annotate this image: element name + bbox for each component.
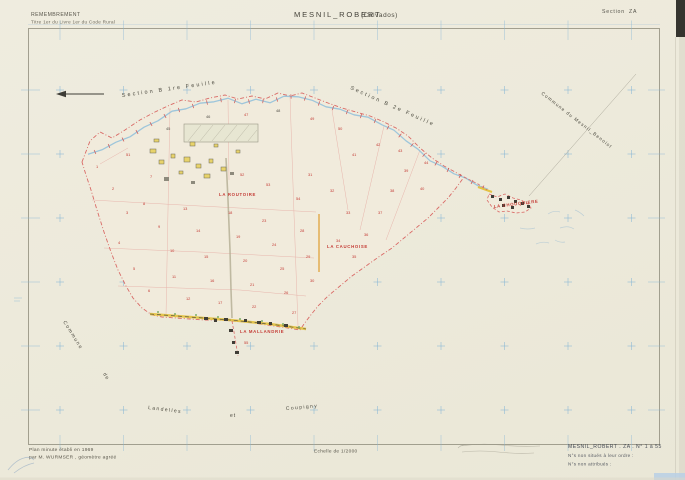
parcel-number: 25 — [280, 266, 284, 271]
parcel-number: 27 — [292, 310, 296, 315]
parcel-number: 39 — [404, 168, 408, 173]
parcel-number: 8 — [143, 201, 145, 206]
area-label: Commune — [61, 320, 84, 351]
section-label: Section — [602, 9, 625, 15]
reference-note2: N°s non attribués : — [568, 462, 612, 467]
parcel-number: 36 — [364, 232, 368, 237]
parcel-number: 2 — [112, 186, 114, 191]
parcel-number: 13 — [183, 206, 187, 211]
parcel-number: 46 — [206, 114, 210, 119]
south-spur-boundary — [232, 321, 238, 356]
parcel-number: 33 — [346, 210, 350, 215]
parcel-number: 18 — [228, 210, 232, 215]
department-name: (Calvados) — [361, 12, 398, 19]
parcel-number: 43 — [398, 148, 402, 153]
code-rural-reference: Titre 1er du Livre 1er du Code Rural — [31, 20, 115, 25]
parcel-number: 26 — [284, 290, 288, 295]
parcel-number: 21 — [250, 282, 254, 287]
parcel-number: 52 — [240, 172, 244, 177]
scanned-cadastral-sheet: { "document": { "header": { "law_line1":… — [0, 0, 685, 480]
hatched-plot — [184, 124, 258, 142]
lieu-dit-label: LA ROUTOIRE — [219, 192, 256, 197]
area-label: Section B 1re Feuille — [121, 80, 217, 99]
section-value: ZA — [629, 9, 637, 15]
parcel-number: 22 — [252, 304, 256, 309]
parcel-number: 47 — [244, 112, 248, 117]
area-label: Landelles — [148, 405, 182, 415]
parcel-number: 53 — [266, 182, 270, 187]
parcel-number: 38 — [390, 188, 394, 193]
edge-shadow-top-right — [676, 0, 685, 37]
area-label: et — [230, 413, 236, 419]
scale-label: Echelle de 1/2000 — [314, 449, 358, 455]
parcel-number: 29 — [306, 254, 310, 259]
minute-line2: par M. WURMSER , géomètre agréé — [29, 455, 116, 461]
reference-note1: N°s non situés à leur ordre : — [568, 453, 634, 458]
area-label: Commune du Mesnil_Benoist — [540, 91, 613, 150]
parcel-number: 37 — [378, 210, 382, 215]
parcel-number: 15 — [204, 254, 208, 259]
header: REMEMBREMENT Titre 1er du Livre 1er du C… — [31, 9, 637, 25]
parcel-number: 31 — [308, 172, 312, 177]
parcel-number: 6 — [148, 288, 150, 293]
parcel-number: 3 — [126, 210, 128, 215]
lieu-dit-label: LA CAUCHOISE — [327, 244, 368, 249]
left-margin-mark — [14, 298, 22, 301]
parcel-number: 11 — [172, 274, 176, 279]
minute-line1: Plan minute établi en 1969 — [29, 447, 94, 453]
blue-field-notes — [520, 210, 584, 244]
remembrement-label: REMEMBREMENT — [31, 12, 81, 18]
edge-right — [679, 37, 685, 480]
pencil-annotation — [458, 444, 540, 453]
parcel-number: 17 — [218, 300, 222, 305]
parcel-number: 19 — [236, 234, 240, 239]
parcel-number: 9 — [158, 224, 160, 229]
section-za-parcel-block — [82, 93, 492, 356]
parcel-number: 12 — [186, 296, 190, 301]
parcel-number: 35 — [352, 254, 356, 259]
parcel-number: 16 — [210, 278, 214, 283]
footer: Plan minute établi en 1969 par M. WURMSE… — [29, 444, 662, 467]
parcel-number: 28 — [300, 228, 304, 233]
parcel-number: 48 — [276, 108, 280, 113]
parcel-number: 5 — [133, 266, 135, 271]
reference-title: MESNIL_ROBERT . ZA . N° 1 à 55 — [568, 444, 662, 450]
area-label: de — [101, 372, 110, 382]
parcel-number: 42 — [376, 142, 380, 147]
north-arrow-icon — [56, 91, 104, 97]
parcel-number: 49 — [310, 116, 314, 121]
parcel-number: 51 — [126, 152, 130, 157]
parcel-number: 41 — [352, 152, 356, 157]
parcel-number: 55 — [244, 340, 248, 345]
lieu-dit-label: LA MALLANDRIE — [240, 329, 284, 334]
parcel-number: 1 — [96, 164, 98, 169]
parcel-number: 32 — [330, 188, 334, 193]
section-boundary — [82, 93, 464, 330]
map-canvas: REMEMBREMENT Titre 1er du Livre 1er du C… — [0, 0, 685, 480]
parcel-number: 7 — [150, 174, 152, 179]
area-label: Coupigny — [286, 403, 319, 412]
parcel-number: 23 — [262, 218, 266, 223]
parcel-number: 45 — [166, 126, 170, 131]
